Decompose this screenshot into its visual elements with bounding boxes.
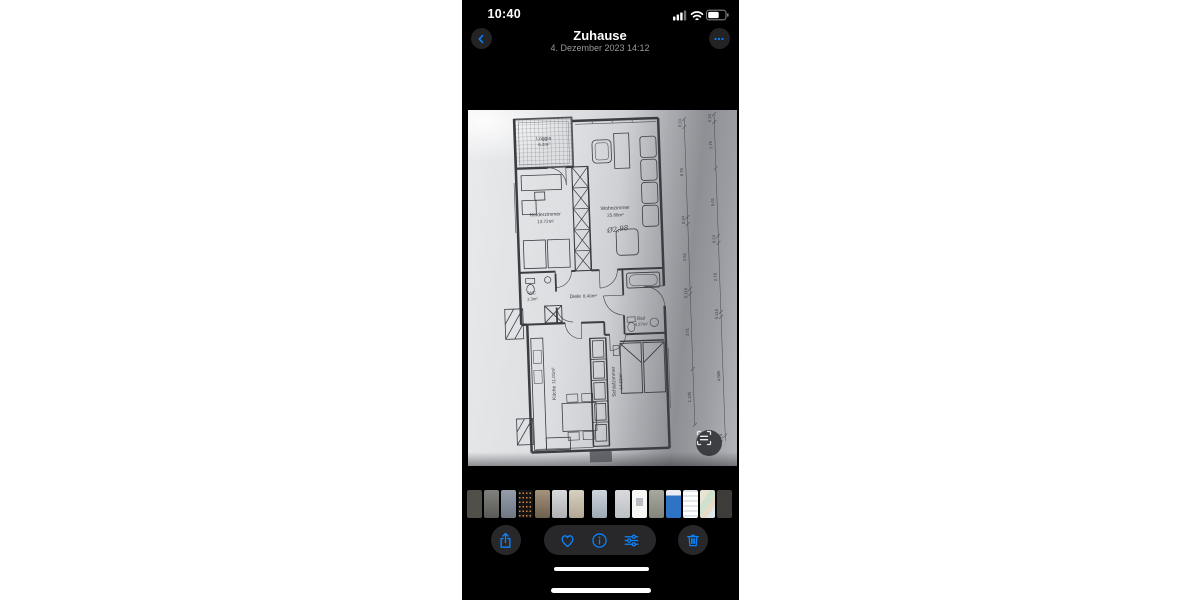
label-kinderzimmer-area: 13.72m² bbox=[537, 219, 554, 225]
photo-thumbnail[interactable] bbox=[484, 490, 499, 518]
info-icon bbox=[590, 531, 609, 550]
photo-thumbnail[interactable] bbox=[683, 490, 698, 518]
svg-text:3.01: 3.01 bbox=[684, 327, 689, 336]
cellular-signal-icon bbox=[673, 11, 686, 21]
svg-text:2.76: 2.76 bbox=[712, 272, 717, 281]
thumbnail-strip[interactable] bbox=[462, 490, 739, 518]
svg-text:5.01: 5.01 bbox=[709, 197, 714, 206]
scan-badge-icon bbox=[696, 430, 722, 456]
trash-icon bbox=[684, 531, 702, 549]
label-kueche: Küche11.01m² bbox=[550, 367, 557, 400]
photo-thumbnail[interactable] bbox=[535, 490, 550, 518]
info-button[interactable] bbox=[588, 528, 612, 552]
toolbar-pill bbox=[544, 525, 656, 555]
photo-viewer[interactable]: Loggia 6.2m² Kinderzimmer 13.72m² Wohnzi… bbox=[468, 110, 737, 466]
favorite-button[interactable] bbox=[556, 528, 580, 552]
label-kinderzimmer: Kinderzimmer bbox=[529, 211, 560, 218]
photo-thumbnail[interactable] bbox=[700, 490, 715, 518]
room-labels: Loggia 6.2m² Kinderzimmer 13.72m² Wohnzi… bbox=[521, 133, 651, 401]
dimension-labels: 0.24 6.76 0.24 2.51 0.115 3.01 1.105 0.2… bbox=[676, 113, 722, 443]
label-wohnzimmer-area: 25.88m² bbox=[607, 212, 624, 218]
share-icon bbox=[496, 531, 515, 550]
status-icons bbox=[673, 8, 729, 26]
label-schlafzimmer: Schlafzimmer bbox=[610, 366, 617, 397]
photo-title: Zuhause bbox=[462, 28, 739, 43]
label-bad: Bad bbox=[636, 315, 645, 320]
nav-bar: Zuhause 4. Dezember 2023 14:12 bbox=[462, 26, 739, 64]
photo-thumbnail[interactable] bbox=[592, 490, 607, 518]
shaft-column bbox=[571, 166, 591, 270]
bottom-toolbar bbox=[462, 524, 739, 558]
svg-text:0.24: 0.24 bbox=[706, 113, 711, 122]
ellipsis-icon bbox=[712, 32, 726, 46]
wifi-icon bbox=[691, 12, 702, 19]
svg-text:2.51: 2.51 bbox=[681, 252, 686, 261]
photo-thumbnail[interactable] bbox=[615, 490, 630, 518]
label-diele: Diele8.40m² bbox=[569, 293, 597, 300]
photo-thumbnail[interactable] bbox=[518, 490, 533, 518]
label-bad-area: 4.27m² bbox=[634, 321, 648, 326]
label-wc: WC bbox=[528, 290, 536, 295]
photo-thumbnail[interactable] bbox=[717, 490, 732, 518]
svg-text:0.24: 0.24 bbox=[711, 234, 716, 243]
label-schlafzimmer-area: 14.53m² bbox=[617, 373, 623, 390]
photo-thumbnail[interactable] bbox=[666, 490, 681, 518]
dimension-chain-inner bbox=[682, 117, 697, 427]
svg-text:0.24: 0.24 bbox=[680, 215, 685, 224]
drag-bar[interactable] bbox=[554, 567, 649, 571]
more-options-button[interactable] bbox=[709, 28, 730, 49]
label-loggia-area: 6.2m² bbox=[538, 142, 550, 147]
adjust-button[interactable] bbox=[620, 528, 644, 552]
photo-date-time: 4. Dezember 2023 14:12 bbox=[462, 43, 739, 53]
photo-thumbnail[interactable] bbox=[649, 490, 664, 518]
label-wc-area: 1.3m² bbox=[526, 296, 537, 301]
svg-text:0.115: 0.115 bbox=[683, 287, 688, 298]
delete-button[interactable] bbox=[678, 525, 708, 555]
svg-text:0.24: 0.24 bbox=[677, 118, 682, 127]
photo-thumbnail[interactable] bbox=[501, 490, 516, 518]
svg-text:6.76: 6.76 bbox=[678, 167, 683, 176]
photo-thumbnail[interactable] bbox=[632, 490, 647, 518]
battery-icon bbox=[706, 10, 728, 20]
kitchen-furniture bbox=[530, 336, 611, 465]
svg-text:0.115: 0.115 bbox=[713, 308, 718, 319]
heart-icon bbox=[558, 531, 577, 550]
home-indicator[interactable] bbox=[551, 588, 651, 593]
svg-text:1.75: 1.75 bbox=[707, 140, 712, 149]
status-bar: 10:40 bbox=[462, 0, 739, 26]
share-button[interactable] bbox=[491, 525, 521, 555]
floor-plan-drawing: Loggia 6.2m² Kinderzimmer 13.72m² Wohnzi… bbox=[468, 110, 737, 466]
svg-text:4.885: 4.885 bbox=[715, 370, 720, 381]
living-room-furniture bbox=[591, 132, 659, 256]
screenshot-canvas: 10:40 bbox=[0, 0, 1200, 600]
svg-text:1.105: 1.105 bbox=[686, 391, 691, 402]
label-wohnzimmer: Wohnzimmer bbox=[600, 205, 630, 212]
sliders-icon bbox=[622, 531, 641, 550]
photo-thumbnail[interactable] bbox=[552, 490, 567, 518]
hall-closet bbox=[544, 305, 562, 323]
iphone-photos-app: 10:40 bbox=[462, 0, 739, 600]
photo-thumbnail[interactable] bbox=[569, 490, 584, 518]
photo-thumbnail[interactable] bbox=[467, 490, 482, 518]
handwritten-note: Ø2,98 bbox=[605, 224, 629, 235]
status-time: 10:40 bbox=[488, 7, 521, 21]
